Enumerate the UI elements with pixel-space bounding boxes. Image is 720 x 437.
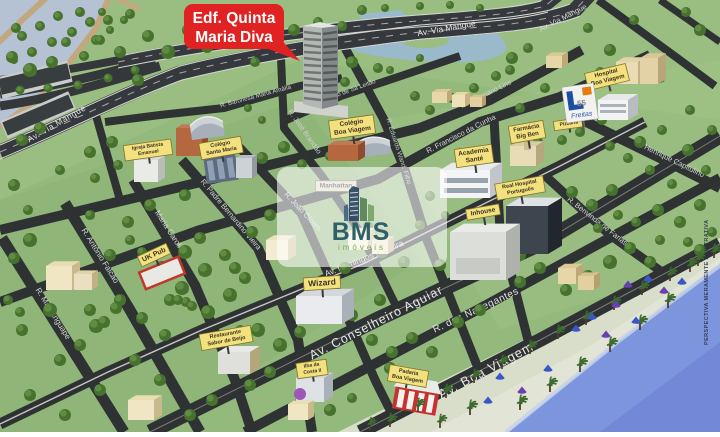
svg-text:Wizard: Wizard — [308, 277, 336, 289]
svg-text:Edf. Quinta: Edf. Quinta — [193, 10, 276, 27]
svg-text:55: 55 — [576, 98, 587, 108]
svg-text:Maria Diva: Maria Diva — [195, 29, 273, 46]
svg-text:imóveis: imóveis — [338, 243, 386, 252]
svg-text:BMS: BMS — [332, 218, 391, 246]
svg-text:PERSPECTIVA MERAMENTE ILUSTRAT: PERSPECTIVA MERAMENTE ILUSTRATIVA — [704, 220, 710, 345]
